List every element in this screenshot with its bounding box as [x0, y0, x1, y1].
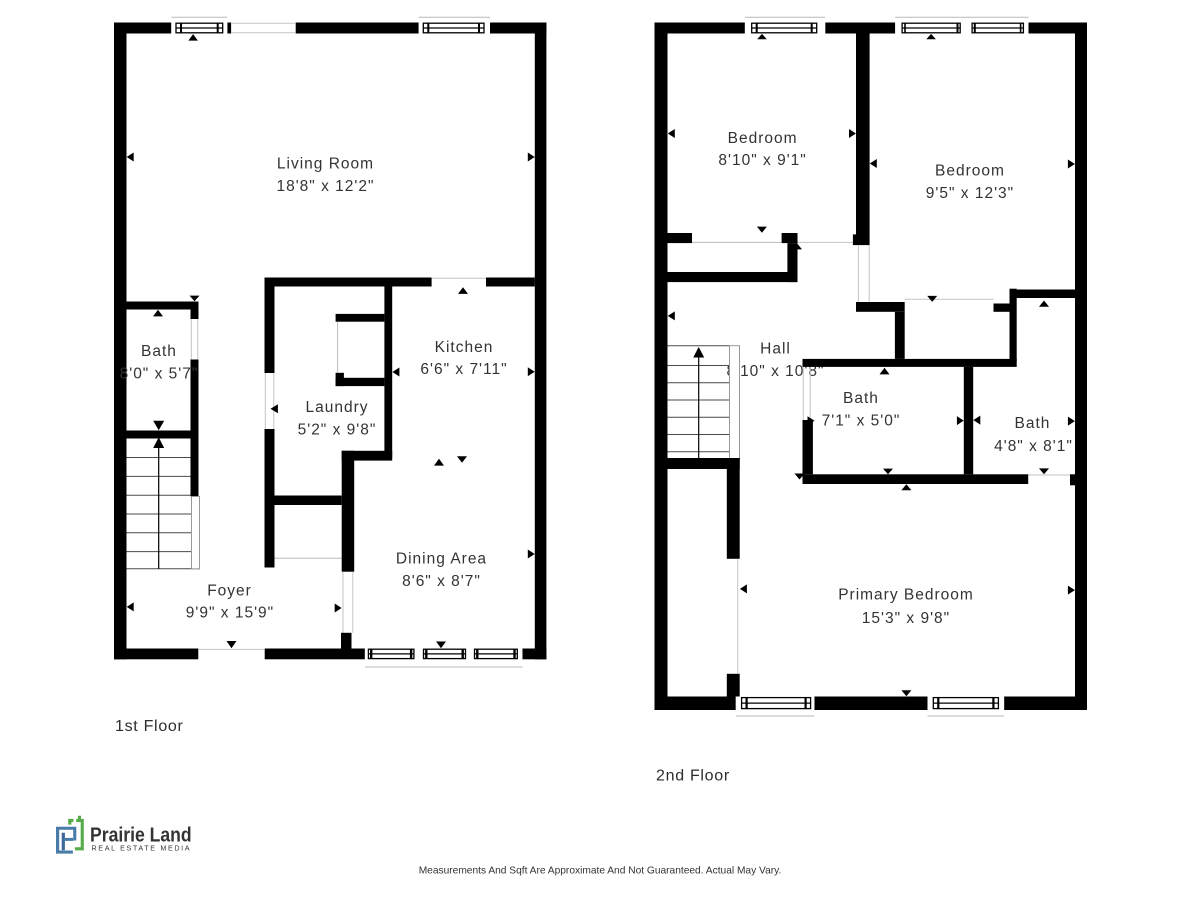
svg-text:Dining Area: Dining Area — [396, 550, 487, 567]
svg-text:Bedroom: Bedroom — [728, 130, 798, 147]
svg-text:Bath: Bath — [141, 343, 177, 360]
svg-text:REAL ESTATE MEDIA: REAL ESTATE MEDIA — [92, 844, 192, 853]
svg-text:Foyer: Foyer — [207, 582, 252, 599]
svg-text:7'1" x 5'0": 7'1" x 5'0" — [822, 412, 901, 429]
svg-text:Prairie Land: Prairie Land — [90, 823, 192, 845]
svg-text:18'8" x 12'2": 18'8" x 12'2" — [276, 178, 374, 195]
svg-text:2nd Floor: 2nd Floor — [656, 768, 730, 785]
svg-text:5'2" x 9'8": 5'2" x 9'8" — [298, 422, 377, 439]
svg-text:Primary Bedroom: Primary Bedroom — [838, 587, 974, 604]
svg-text:Measurements And Sqft Are Appr: Measurements And Sqft Are Approximate An… — [419, 866, 782, 877]
svg-text:9'5" x 12'3": 9'5" x 12'3" — [926, 185, 1014, 202]
svg-text:Kitchen: Kitchen — [435, 339, 494, 356]
svg-text:8'6" x 8'7": 8'6" x 8'7" — [402, 573, 481, 590]
svg-text:8'0" x 5'7": 8'0" x 5'7" — [120, 366, 199, 383]
svg-text:8'10" x 9'1": 8'10" x 9'1" — [718, 152, 806, 169]
svg-text:9'9" x 15'9": 9'9" x 15'9" — [186, 605, 274, 622]
svg-text:1st Floor: 1st Floor — [115, 718, 184, 735]
svg-text:Laundry: Laundry — [305, 399, 368, 416]
svg-text:Hall: Hall — [760, 341, 791, 358]
svg-text:4'8" x 8'1": 4'8" x 8'1" — [994, 438, 1073, 455]
svg-text:Bath: Bath — [843, 390, 879, 407]
svg-text:Living Room: Living Room — [277, 156, 374, 173]
svg-text:6'6" x 7'11": 6'6" x 7'11" — [420, 361, 507, 378]
svg-text:Bedroom: Bedroom — [935, 163, 1005, 180]
svg-text:Bath: Bath — [1015, 415, 1051, 432]
svg-text:15'3" x 9'8": 15'3" x 9'8" — [862, 610, 950, 627]
